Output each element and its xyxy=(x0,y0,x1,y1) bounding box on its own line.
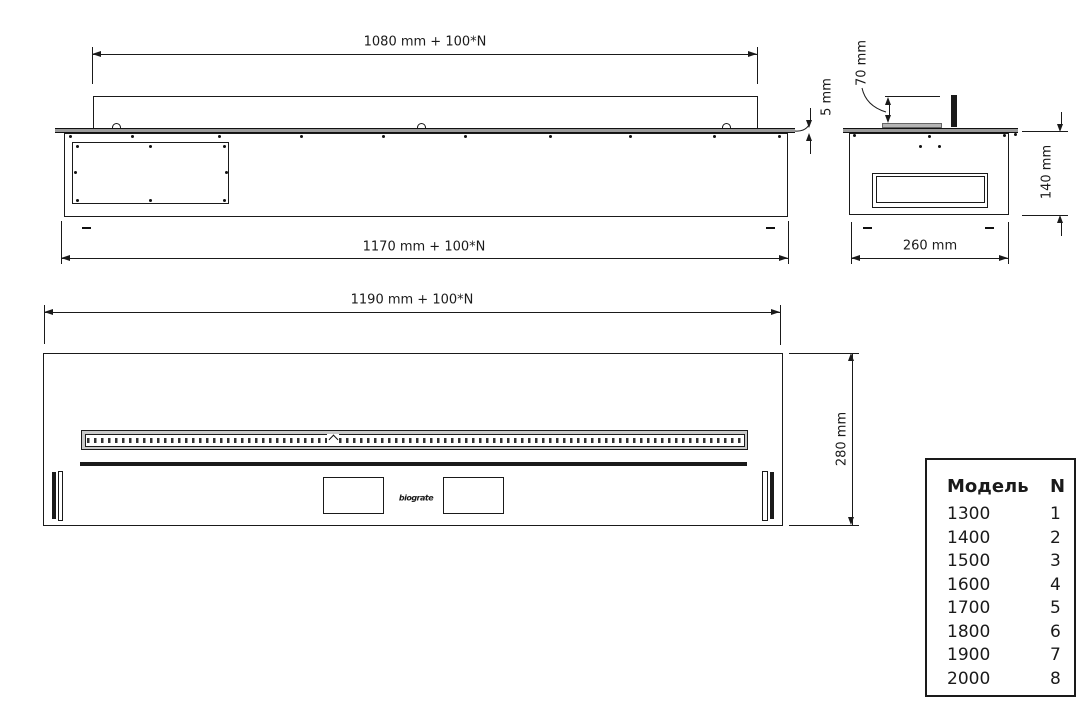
dim-label-body-width: 260 mm xyxy=(903,239,957,254)
reference-line xyxy=(885,96,940,97)
screw-dot xyxy=(69,135,72,138)
arrowhead xyxy=(779,255,788,261)
control-box xyxy=(323,477,384,514)
n-cell: 1 xyxy=(1050,504,1061,524)
access-panel xyxy=(72,142,229,204)
screw-dot xyxy=(300,135,303,138)
dim-extension-line xyxy=(810,141,811,154)
model-cell: 1600 xyxy=(947,575,990,595)
panel-screw xyxy=(223,199,226,202)
dim-label-front-bottom: 1170 mm + 100*N xyxy=(363,240,486,255)
dim-label-lip: 5 mm xyxy=(820,78,835,116)
screw-dot xyxy=(1003,134,1006,137)
arrowhead xyxy=(999,255,1008,261)
table-row: 19007 xyxy=(947,645,1072,669)
dim-label-front-top: 1080 mm + 100*N xyxy=(364,35,487,50)
reference-dash xyxy=(985,227,994,229)
screw-dot xyxy=(549,135,552,138)
side-access-window-inner xyxy=(876,176,985,203)
arrowhead xyxy=(806,133,812,141)
arrowhead xyxy=(771,309,780,315)
reference-dash xyxy=(82,227,91,229)
arrowhead xyxy=(748,51,757,57)
model-cell: 1400 xyxy=(947,528,990,548)
screw-dot xyxy=(853,134,856,137)
arrowhead xyxy=(1057,124,1063,132)
model-cell: 2000 xyxy=(947,669,990,689)
screw-dot xyxy=(218,135,221,138)
screw-dot xyxy=(382,135,385,138)
reference-dash xyxy=(863,227,872,229)
model-cell: 1700 xyxy=(947,598,990,618)
table-row: 14002 xyxy=(947,528,1072,552)
model-table: Модель N 13001 14002 15003 16004 17005 1… xyxy=(925,458,1076,697)
model-cell: 1900 xyxy=(947,645,990,665)
screw-dot xyxy=(629,135,632,138)
table-header-n: N xyxy=(1050,476,1065,497)
table-row: 20008 xyxy=(947,669,1072,693)
model-cell: 1500 xyxy=(947,551,990,571)
control-box xyxy=(443,477,504,514)
table-header-model: Модель xyxy=(947,476,1029,497)
dim-line xyxy=(61,258,788,259)
table-row: 18006 xyxy=(947,622,1072,646)
screw-dot xyxy=(464,135,467,138)
hinge-bar-outline xyxy=(762,471,768,521)
arrowhead xyxy=(92,51,101,57)
arrowhead xyxy=(61,255,70,261)
table-row: 16004 xyxy=(947,575,1072,599)
panel-screw xyxy=(149,145,152,148)
dim-line xyxy=(44,312,780,313)
dim-label-plan-depth: 280 mm xyxy=(835,412,850,466)
n-cell: 4 xyxy=(1050,575,1061,595)
dim-label-body-height: 140 mm xyxy=(1040,145,1055,199)
screw-dot xyxy=(919,145,922,148)
n-cell: 8 xyxy=(1050,669,1061,689)
arrowhead xyxy=(885,115,891,123)
screw-dot xyxy=(928,135,931,138)
dim-label-insert-height: 70 mm xyxy=(855,40,870,86)
table-row: 15003 xyxy=(947,551,1072,575)
n-cell: 3 xyxy=(1050,551,1061,571)
screw-dot xyxy=(778,135,781,138)
n-cell: 2 xyxy=(1050,528,1061,548)
dim-line xyxy=(1061,222,1062,236)
panel-screw xyxy=(223,145,226,148)
panel-screw xyxy=(225,171,228,174)
panel-screw xyxy=(76,199,79,202)
dim-label-plan-length: 1190 mm + 100*N xyxy=(351,293,474,308)
glass-panel xyxy=(93,96,758,129)
reference-dash xyxy=(766,227,775,229)
model-cell: 1300 xyxy=(947,504,990,524)
n-cell: 6 xyxy=(1050,622,1061,642)
trough-line xyxy=(80,462,747,466)
dim-line xyxy=(92,54,757,55)
n-cell: 5 xyxy=(1050,598,1061,618)
dim-line xyxy=(851,258,1008,259)
brand-logo: biograte xyxy=(399,494,433,503)
hinge-bar-outline xyxy=(58,471,64,521)
n-cell: 7 xyxy=(1050,645,1061,665)
table-row: 13001 xyxy=(947,504,1072,528)
panel-screw xyxy=(149,199,152,202)
technical-drawing: 1080 mm + 100*N xyxy=(0,0,1089,712)
table-rows: 13001 14002 15003 16004 17005 18006 1900… xyxy=(947,504,1072,692)
arrowhead xyxy=(851,255,860,261)
hinge-bar xyxy=(52,472,56,519)
panel-screw xyxy=(76,145,79,148)
model-cell: 1800 xyxy=(947,622,990,642)
table-row: 17005 xyxy=(947,598,1072,622)
burner-ports xyxy=(87,438,741,443)
arrowhead xyxy=(848,517,854,525)
dim-line xyxy=(852,353,853,525)
control-stem xyxy=(951,95,957,127)
screw-dot xyxy=(1014,133,1017,136)
arrowhead xyxy=(44,309,53,315)
hinge-bar xyxy=(770,472,774,519)
screw-dot xyxy=(938,145,941,148)
panel-screw xyxy=(74,171,77,174)
arrowhead xyxy=(848,353,854,361)
screw-dot xyxy=(713,135,716,138)
arrowhead xyxy=(806,120,812,128)
screw-dot xyxy=(131,135,134,138)
